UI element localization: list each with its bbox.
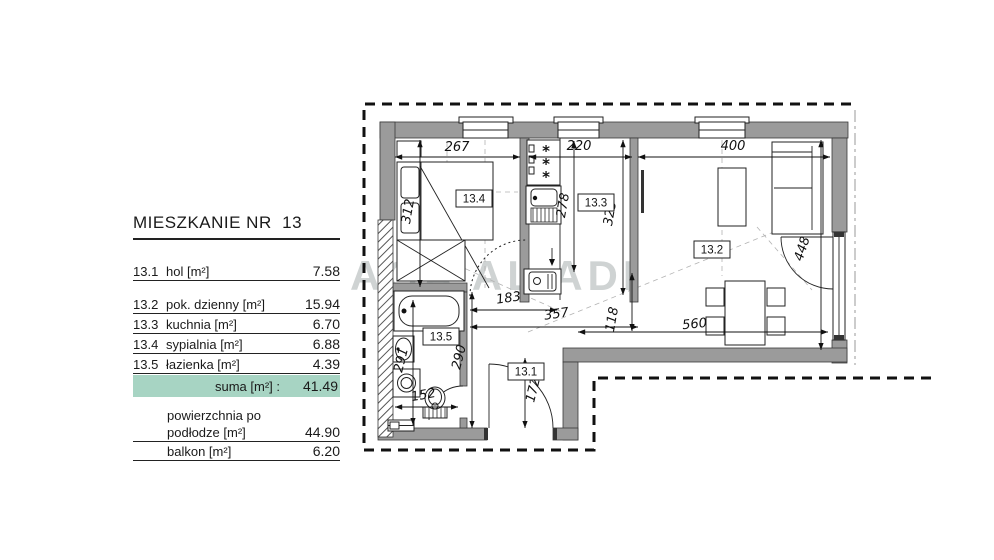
dim-label: 183 <box>495 289 522 307</box>
oven <box>524 269 561 294</box>
dim-label: 220 <box>567 139 592 154</box>
room-number: 13.3 <box>585 198 607 210</box>
chair <box>767 288 785 306</box>
room-number: 13.5 <box>430 332 452 344</box>
floorplan-page: AGA AL ADI MIESZKANIE NR 13 13.1 hol [m²… <box>0 0 994 560</box>
nightstand <box>397 141 421 157</box>
coffee-table <box>718 168 746 226</box>
window-livingroom <box>695 117 749 138</box>
floor-plan-svg: * * * <box>0 0 994 560</box>
dim-label: 448 <box>792 235 814 263</box>
sofa <box>772 142 823 234</box>
room-number: 13.2 <box>701 245 723 257</box>
cooktop: * * * <box>527 140 560 186</box>
room-number: 13.1 <box>515 367 537 379</box>
dim-label: 118 <box>603 306 622 333</box>
direction-arrow <box>549 259 555 266</box>
dim-label: 400 <box>721 139 746 154</box>
window-bedroom <box>459 117 513 138</box>
pillow <box>401 167 419 198</box>
tv <box>641 170 644 213</box>
wardrobe <box>397 240 465 281</box>
dim-label: 560 <box>682 316 708 334</box>
bedroom-door-arc <box>470 240 526 296</box>
balcony-door <box>781 232 845 340</box>
shaft-hatched-wall <box>378 220 393 437</box>
chair <box>706 288 724 306</box>
burner-icon: * <box>542 168 550 186</box>
dim-label: 267 <box>445 140 471 155</box>
room-number: 13.4 <box>463 194 486 206</box>
kitchen-furniture: * * * <box>524 138 561 300</box>
window-kitchen <box>554 117 603 138</box>
radiator <box>388 420 414 431</box>
dining-table <box>725 281 765 345</box>
dim-label: 278 <box>554 192 573 219</box>
dim-label: 357 <box>543 305 570 323</box>
bathtub <box>394 291 464 331</box>
